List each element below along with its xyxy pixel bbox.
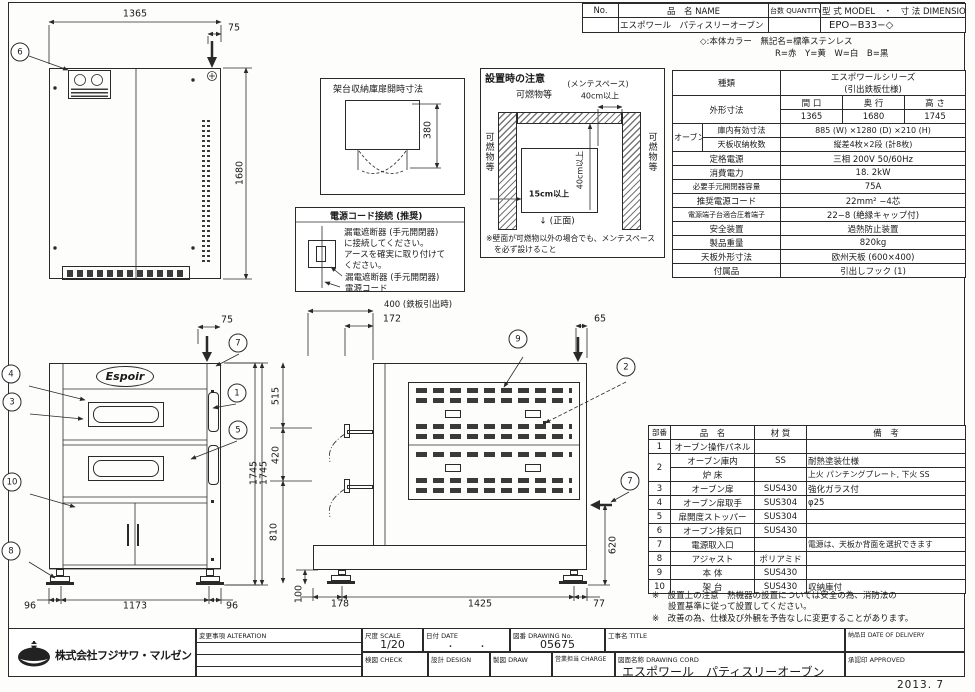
balloon-1: 1	[228, 384, 247, 403]
wall-right	[622, 112, 641, 230]
header-table: No. 品 名 NAME 台数 QUANTITY 型 式 MODEL ・ 寸 法…	[582, 3, 966, 33]
balloon-7: 7	[229, 334, 248, 353]
drawing-name-cell: 図面名称 DRAWING CORD エスポワール パティスリーオーブン	[615, 652, 845, 677]
power-cord-label: 電源コード	[345, 282, 388, 294]
product-name-value: エスポワール パティスリーオーブン	[619, 18, 769, 33]
oven-door-glass-upper	[93, 406, 159, 423]
header-qty-value	[769, 18, 821, 33]
box3-note: を必ず設けること	[494, 244, 556, 255]
foot	[206, 569, 214, 576]
flammable-label-top: 可燃物等	[516, 88, 552, 101]
parts-row: 1オーブン操作パネル	[649, 440, 966, 454]
parts-row: 2オーブン庫内SS耐熱塗装仕様	[649, 454, 966, 468]
date-value: ・ ・	[424, 641, 509, 652]
disclaimer-note: ※ 改善の為、仕様及び外観を予告なしに変更することがあります。	[652, 612, 913, 624]
dim-side-420: 420	[271, 446, 282, 464]
detail-box2-title: 電源コード接続 (推奨)	[330, 209, 422, 222]
drawing-name-value: エスポワール パティスリーオーブン	[616, 663, 844, 680]
charge-cell: 営業担当 CHARGE	[552, 652, 615, 677]
breaker-switch-icon	[316, 246, 326, 262]
balloon-8: 8	[2, 542, 21, 561]
header-no-value	[583, 18, 619, 33]
balloon-4: 4	[2, 365, 21, 384]
brand-logo: Espoir	[96, 366, 154, 387]
exhaust-louvers	[71, 87, 108, 97]
dim-side-pullout: 400 (鉄板引出時)	[384, 298, 452, 310]
dim-plan-offset: 75	[228, 23, 240, 34]
parts-row: 6オーブン排気口SUS430	[649, 524, 966, 538]
dim-side-620: 620	[608, 536, 619, 554]
front-direction-mark: ↓ (正面)	[539, 214, 574, 227]
wall-left	[498, 112, 517, 230]
dim-side-b3: 77	[593, 599, 605, 610]
scale-cell: 尺度 SCALE 1/20	[362, 628, 423, 652]
dim-side-515: 515	[271, 387, 282, 405]
dim-front-right: 96	[226, 601, 238, 612]
cabinet-handle-icon	[137, 524, 139, 546]
dim-plan-width: 1365	[123, 9, 147, 20]
spec-outer-label: 外形寸法	[673, 96, 781, 124]
spec-kind-label: 種類	[673, 71, 781, 96]
dim-front-offset: 75	[221, 315, 233, 326]
spec-table: 種類 エスポワールシリーズ (引出鉄板仕様) 外形寸法 間 口 奥 行 高 さ …	[672, 70, 966, 278]
date-cell: 日付 DATE ・ ・	[423, 628, 510, 652]
balloon-6: 6	[11, 43, 30, 62]
dim-front-height: 1745	[259, 461, 270, 485]
parts-row: 4オーブン扉取手SUS304φ25	[649, 496, 966, 510]
spec-inner-value: 885 (W) ×1280 (D) ×210 (H)	[781, 124, 966, 138]
approved-cell: 承認印 APPROVED	[845, 652, 965, 677]
balloon-10: 10	[3, 473, 22, 492]
dim-40cm-side: 40cm以上	[575, 151, 586, 189]
parts-header-no: 部番	[649, 426, 671, 440]
hinge-strip-icon	[202, 118, 205, 262]
dim-side-b2: 1425	[468, 599, 492, 610]
control-panel-upper	[208, 392, 219, 432]
oven-door-glass-lower	[93, 460, 159, 477]
parts-header-mat: 材 質	[755, 426, 807, 440]
company-cell: 株式会社フジサワ・マルゼン	[8, 628, 196, 677]
dim-side-offset: 65	[594, 314, 606, 325]
dim-side-810: 810	[269, 523, 280, 541]
plan-view-body	[49, 68, 221, 279]
brand-logo-text: Espoir	[106, 370, 145, 383]
spec-width: 1365	[781, 110, 843, 124]
dim-40cm-top: 40cm以上	[581, 91, 619, 102]
project-title-cell: 工事名 TITLE	[605, 628, 845, 652]
dim-380: 380	[423, 121, 434, 139]
header-name-label: 品 名 NAME	[619, 4, 769, 18]
stand-cabinet-outline	[345, 100, 420, 150]
delivery-cell: 納品日 DATE OF DELIVERY	[845, 628, 965, 652]
door-handle-icon	[347, 485, 373, 489]
detail-box1-title: 架台収納庫扉開時寸法	[333, 82, 423, 95]
box3-note: ※壁面が可燃物以外の場合でも、メンテスペース	[486, 233, 655, 244]
header-model-label: 型 式 MODEL ・ 寸 法 DIMENSION	[821, 4, 966, 18]
installation-note-2: 設置基準に従って設置してください。	[668, 600, 812, 612]
balloon-5: 5	[229, 421, 248, 440]
color-note-2: R=赤 Y=黄 W=白 B=黒	[775, 47, 888, 59]
parts-table: 部番 品 名 材 質 備 考 1オーブン操作パネル 2オーブン庫内SS耐熱塗装仕…	[648, 425, 966, 594]
drawing-no-cell: 図番 DRAWING No. 05675	[510, 628, 605, 652]
design-cell: 設計 DESIGN	[428, 652, 490, 677]
dim-side-b1: 178	[331, 599, 349, 610]
model-value: EPO−B33−◇	[821, 18, 966, 33]
header-no-label: No.	[583, 4, 619, 18]
control-panel-lower	[208, 445, 219, 485]
drawing-sheet: 1365 75 1680 6 Espoir 75 1745 96 1173 96	[0, 0, 975, 692]
box2-text: ください。	[344, 259, 387, 271]
dim-plan-depth: 1680	[235, 161, 246, 185]
spec-tray-value: 縦差4枚×2段 (計8枚)	[781, 138, 966, 152]
stand-plinth	[313, 545, 587, 570]
alteration-cell: 変更事項 ALTERATION	[196, 628, 362, 677]
maintenance-label: (メンテスペース)	[567, 79, 628, 90]
spec-kind-value: エスポワールシリーズ (引出鉄板仕様)	[781, 71, 966, 96]
flammable-label-left: 可燃物等	[483, 132, 496, 172]
balloon-3: 3	[3, 393, 22, 412]
foot	[56, 569, 64, 576]
check-cell: 検図 CHECK	[362, 652, 428, 677]
cabinet-handle-icon	[127, 524, 129, 546]
draw-cell: 製図 DRAW	[490, 652, 552, 677]
door-handle-icon	[344, 424, 350, 438]
flammable-label-right: 可燃物等	[646, 132, 659, 172]
parts-row: 3オーブン扉SUS430強化ガラス付	[649, 482, 966, 496]
oven-footprint	[521, 148, 598, 213]
dim-side-100: 100	[294, 585, 305, 603]
parts-row: 炉 床上火 パンチングプレート, 下火 SS	[649, 468, 966, 482]
company-name: 株式会社フジサワ・マルゼン	[55, 647, 192, 663]
dim-front-left: 96	[24, 601, 36, 612]
dim-side-total-height: 1745	[249, 461, 260, 485]
parts-row: 7電源取入口電源は、天板か背面を選択できます	[649, 538, 966, 552]
parts-row: 9本 体SUS430	[649, 566, 966, 580]
dim-side-handle: 172	[383, 314, 401, 325]
alteration-label: 変更事項 ALTERATION	[199, 630, 266, 640]
spec-height: 1745	[905, 110, 966, 124]
balloon-2: 2	[617, 358, 636, 377]
parts-header-note: 備 考	[807, 426, 966, 440]
wall-top	[517, 112, 622, 124]
color-note-1: ◇:本体カラー 無記名=標準ステンレス	[700, 35, 853, 47]
parts-header-name: 品 名	[671, 426, 755, 440]
door-handle-icon	[347, 430, 373, 434]
date-stamp: 2013. 7	[897, 679, 944, 691]
drawing-no-value: 05675	[511, 638, 604, 651]
hinge-strip-icon	[207, 118, 210, 262]
front-handle-rail	[62, 266, 190, 280]
dim-15cm: 15cm以上	[529, 189, 569, 200]
dim-front-center: 1173	[123, 601, 147, 612]
header-qty-label: 台数 QUANTITY	[769, 4, 821, 18]
company-logo	[15, 639, 53, 669]
spec-oven-label: オーブン	[673, 124, 703, 152]
detail-box3-title: 設置時の注意	[485, 70, 545, 85]
parts-row: 8アジャストポリアミド	[649, 552, 966, 566]
spec-depth: 1680	[843, 110, 905, 124]
balloon-7b: 7	[621, 472, 640, 491]
parts-row: 5扉開度ストッパーSUS304	[649, 510, 966, 524]
balloon-9: 9	[509, 330, 528, 349]
door-handle-icon	[344, 479, 350, 493]
scale-value: 1/20	[363, 638, 422, 651]
